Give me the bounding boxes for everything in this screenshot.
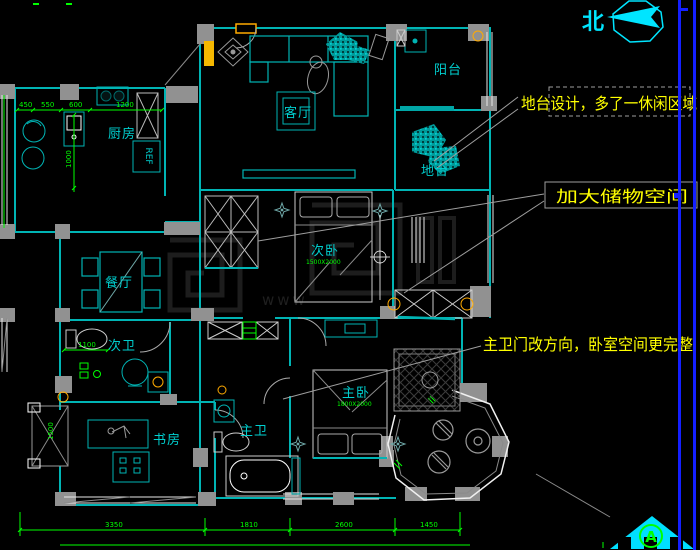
- fridge-label: REF: [143, 147, 153, 164]
- north-compass-icon: [607, 1, 663, 42]
- dim-1200: 1200: [116, 101, 134, 109]
- dim-550: 550: [41, 101, 54, 109]
- room-label-master-bath: 主卫: [240, 424, 268, 439]
- cad-floorplan-canvas: www: [0, 0, 700, 550]
- entry-ornament: [218, 38, 248, 66]
- dim-1810: 1810: [240, 521, 258, 529]
- bottom-dim-chain: [18, 512, 603, 548]
- dim-2600: 2600: [335, 521, 353, 529]
- dim-1100: 1100: [78, 341, 96, 349]
- dim-600: 600: [69, 101, 82, 109]
- annotation-platform-design: 地台设计，多了一休闲区域: [521, 94, 697, 113]
- living-plant-2: [348, 44, 370, 64]
- ceiling-light-icon: [391, 437, 405, 451]
- blue-reference-lines: [674, 0, 696, 550]
- room-label-platform: 地台: [421, 164, 449, 179]
- room-label-kitchen: 厨房: [108, 126, 136, 142]
- watermark-text: www: [262, 291, 308, 309]
- dim-450: 450: [19, 101, 32, 109]
- dim-3350: 3350: [105, 521, 123, 529]
- room-label-bedroom2: 次卧: [311, 243, 339, 259]
- ceiling-light-icon: [275, 203, 289, 217]
- dim-bay-1500: 1500: [47, 422, 55, 440]
- room-label-balcony: 阳台: [434, 63, 462, 78]
- room-label-study: 书房: [153, 432, 181, 448]
- room-label-master-bedroom: 主卧: [342, 386, 370, 401]
- dim-1450: 1450: [420, 521, 438, 529]
- bedroom2-wardrobe: [205, 196, 258, 268]
- room-label-dining: 餐厅: [105, 275, 133, 291]
- bedroom2-bed-size: 1500X2000: [306, 259, 341, 266]
- floorplan-drawing: www: [0, 0, 700, 550]
- room-label-bath2: 次卫: [108, 338, 136, 354]
- ceiling-light-icon: [291, 437, 305, 451]
- window-hatch: [2, 318, 196, 503]
- section-marker-label: A: [645, 528, 657, 546]
- annotation-storage: 加大储物空间: [556, 187, 688, 206]
- master-bath-fixtures: [208, 322, 300, 496]
- reference-cross-icon: [370, 215, 390, 300]
- platform-edge: [400, 106, 454, 111]
- room-label-living: 客厅: [284, 105, 312, 121]
- hall-storage-cabinet: [388, 290, 473, 319]
- lounge-chair: [369, 34, 389, 59]
- kitchen-fixtures: [22, 87, 160, 172]
- master-bed-size: 1800X2000: [337, 401, 372, 408]
- bath2-fixtures: [58, 322, 170, 402]
- dim-1000: 1000: [65, 150, 73, 168]
- bay-table-and-chairs: [428, 420, 490, 473]
- annotation-master-bath-door: 主卫门改方向，卧室空间更完整: [483, 335, 693, 354]
- north-label: 北: [582, 10, 604, 35]
